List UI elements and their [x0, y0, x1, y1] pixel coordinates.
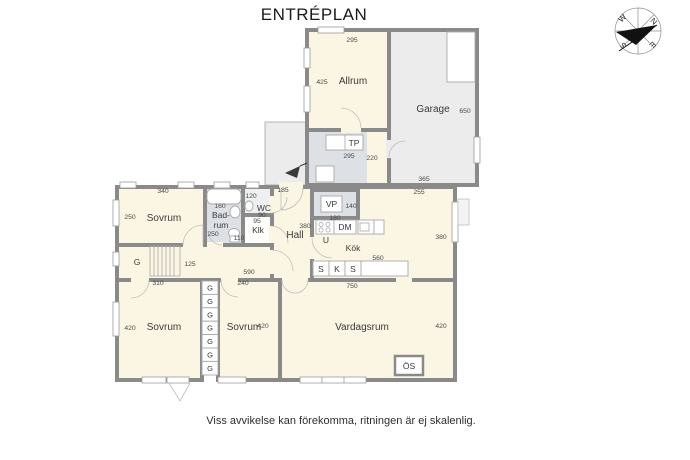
- dim-kok-right: 380: [435, 234, 447, 241]
- page-title: ENTRÉPLAN: [261, 5, 368, 24]
- stove-icon: [316, 220, 334, 234]
- floor-plan: ENTRÉPLAN: [0, 0, 690, 460]
- label-sovrum-sw: Sovrum: [147, 322, 181, 333]
- compass-n: N: [648, 16, 659, 27]
- label-garage: Garage: [416, 104, 450, 115]
- dim-vp-bottom: 180: [329, 215, 341, 222]
- dim-sovrum-sw-left: 420: [124, 325, 136, 332]
- label-vp: VP: [326, 199, 338, 209]
- compass-e: E: [648, 40, 658, 50]
- dim-badrum-top: 160: [214, 203, 226, 210]
- wardrobe-letter: G: [207, 284, 213, 293]
- dim-tp-right: 220: [366, 155, 378, 162]
- floor-plan-page: ENTRÉPLAN: [0, 0, 690, 460]
- wardrobe-letter: G: [207, 337, 213, 346]
- wardrobe-letter: G: [207, 351, 213, 360]
- label-kok: Kök: [346, 243, 361, 253]
- dim-kok-top: 255: [413, 189, 425, 196]
- dim-corridor: 590: [243, 269, 255, 276]
- dim-sovrum-nw-top: 340: [157, 188, 169, 195]
- dim-allrum-left: 425: [316, 79, 328, 86]
- disclaimer-text: Viss avvikelse kan förekomma, ritningen …: [206, 415, 475, 427]
- wardrobe-letter: G: [207, 310, 213, 319]
- label-vardagsrum: Vardagsrum: [335, 322, 389, 333]
- dim-wc-top: 120: [245, 193, 257, 200]
- label-klk: Klk: [252, 225, 265, 235]
- bench-cabinet: [361, 261, 408, 276]
- sink-icon: [230, 206, 240, 218]
- dim-sovrum-s-right: 420: [257, 323, 269, 330]
- counter-box: [374, 220, 384, 234]
- label-hall: Hall: [286, 230, 303, 241]
- dim-stair: 125: [184, 261, 196, 268]
- garage-door-area: [447, 32, 475, 82]
- label-sovrum-nw: Sovrum: [147, 213, 181, 224]
- label-badrum-line2: rum: [214, 220, 229, 230]
- dim-klk-left: 110: [234, 235, 245, 242]
- wardrobe-letter: G: [207, 324, 213, 333]
- dim-garage-bottom: 365: [418, 176, 430, 183]
- dim-bench: 560: [372, 255, 384, 262]
- wardrobe-letter: G: [207, 364, 213, 373]
- dim-sovrum-sw-top: 310: [152, 280, 164, 287]
- dim-garage-right: 650: [459, 108, 471, 115]
- bench-letter: K: [334, 264, 340, 274]
- label-sovrum-s: Sovrum: [227, 322, 261, 333]
- washer-icon: [316, 166, 334, 182]
- porch-area: [265, 122, 309, 185]
- dim-vardagsrum-right: 420: [435, 323, 447, 330]
- compass-w: W: [616, 12, 628, 24]
- dim-vp-right: 140: [345, 203, 357, 210]
- dim-klk-top: 95: [253, 218, 261, 225]
- dim-vardagsrum-top: 750: [346, 283, 358, 290]
- dim-badrum-left: 250: [207, 231, 219, 238]
- label-dm: DM: [338, 222, 351, 232]
- bathtub-icon: [207, 189, 241, 204]
- wardrobe-letter: G: [207, 297, 213, 306]
- label-g-closet: G: [134, 257, 141, 267]
- compass-icon: W N S E: [615, 8, 661, 54]
- label-tp: TP: [349, 138, 360, 148]
- wc-sink-icon: [245, 201, 253, 211]
- label-allrum: Allrum: [339, 76, 367, 87]
- dim-allrum-top: 295: [346, 37, 358, 44]
- label-os: ÖS: [403, 361, 416, 371]
- dim-sovrum-s-top: 240: [237, 280, 249, 287]
- bench-letter: S: [350, 264, 356, 274]
- dim-tp-bottom: 295: [343, 153, 355, 160]
- dim-porch-top: 185: [277, 187, 289, 194]
- bench-letter: S: [318, 264, 324, 274]
- label-badrum-line1: Bad-: [212, 210, 230, 220]
- dim-sovrum-nw-left: 250: [124, 214, 136, 221]
- label-oven: U: [323, 235, 329, 245]
- dim-hall-right: 380: [299, 223, 311, 230]
